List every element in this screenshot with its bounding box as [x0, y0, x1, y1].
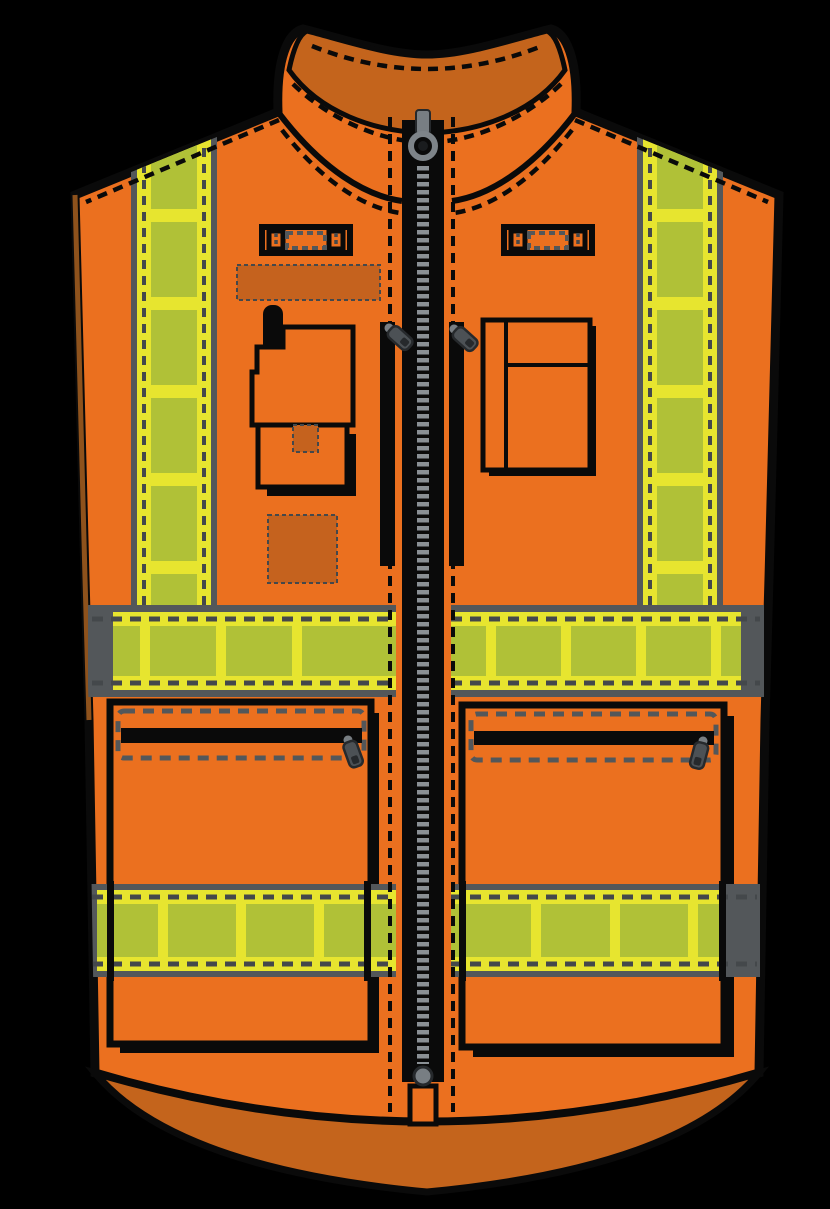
zipper-bottom-stop	[414, 1067, 432, 1085]
chest-zip-left	[380, 322, 395, 566]
radio-pocket	[252, 305, 356, 496]
cargo-pocket-left	[110, 702, 379, 1053]
zipper-slider	[416, 110, 430, 134]
placket-bottom-tab	[410, 1086, 436, 1124]
pocket-zip-right	[474, 731, 714, 745]
chest-loop-right	[504, 227, 592, 253]
hi-vis-vest-svg: Vector illustration of a high-visibility…	[0, 0, 830, 1209]
vest-illustration: Vector illustration of a high-visibility…	[0, 0, 830, 1209]
chest-pocket-right	[483, 320, 596, 476]
chest-loop-left	[262, 227, 350, 253]
chest-zip-right	[449, 322, 464, 566]
cargo-pocket-right	[462, 705, 734, 1057]
badge-panel	[237, 265, 380, 300]
pocket-zip-left	[121, 728, 362, 743]
chest-square-panel	[268, 515, 337, 583]
